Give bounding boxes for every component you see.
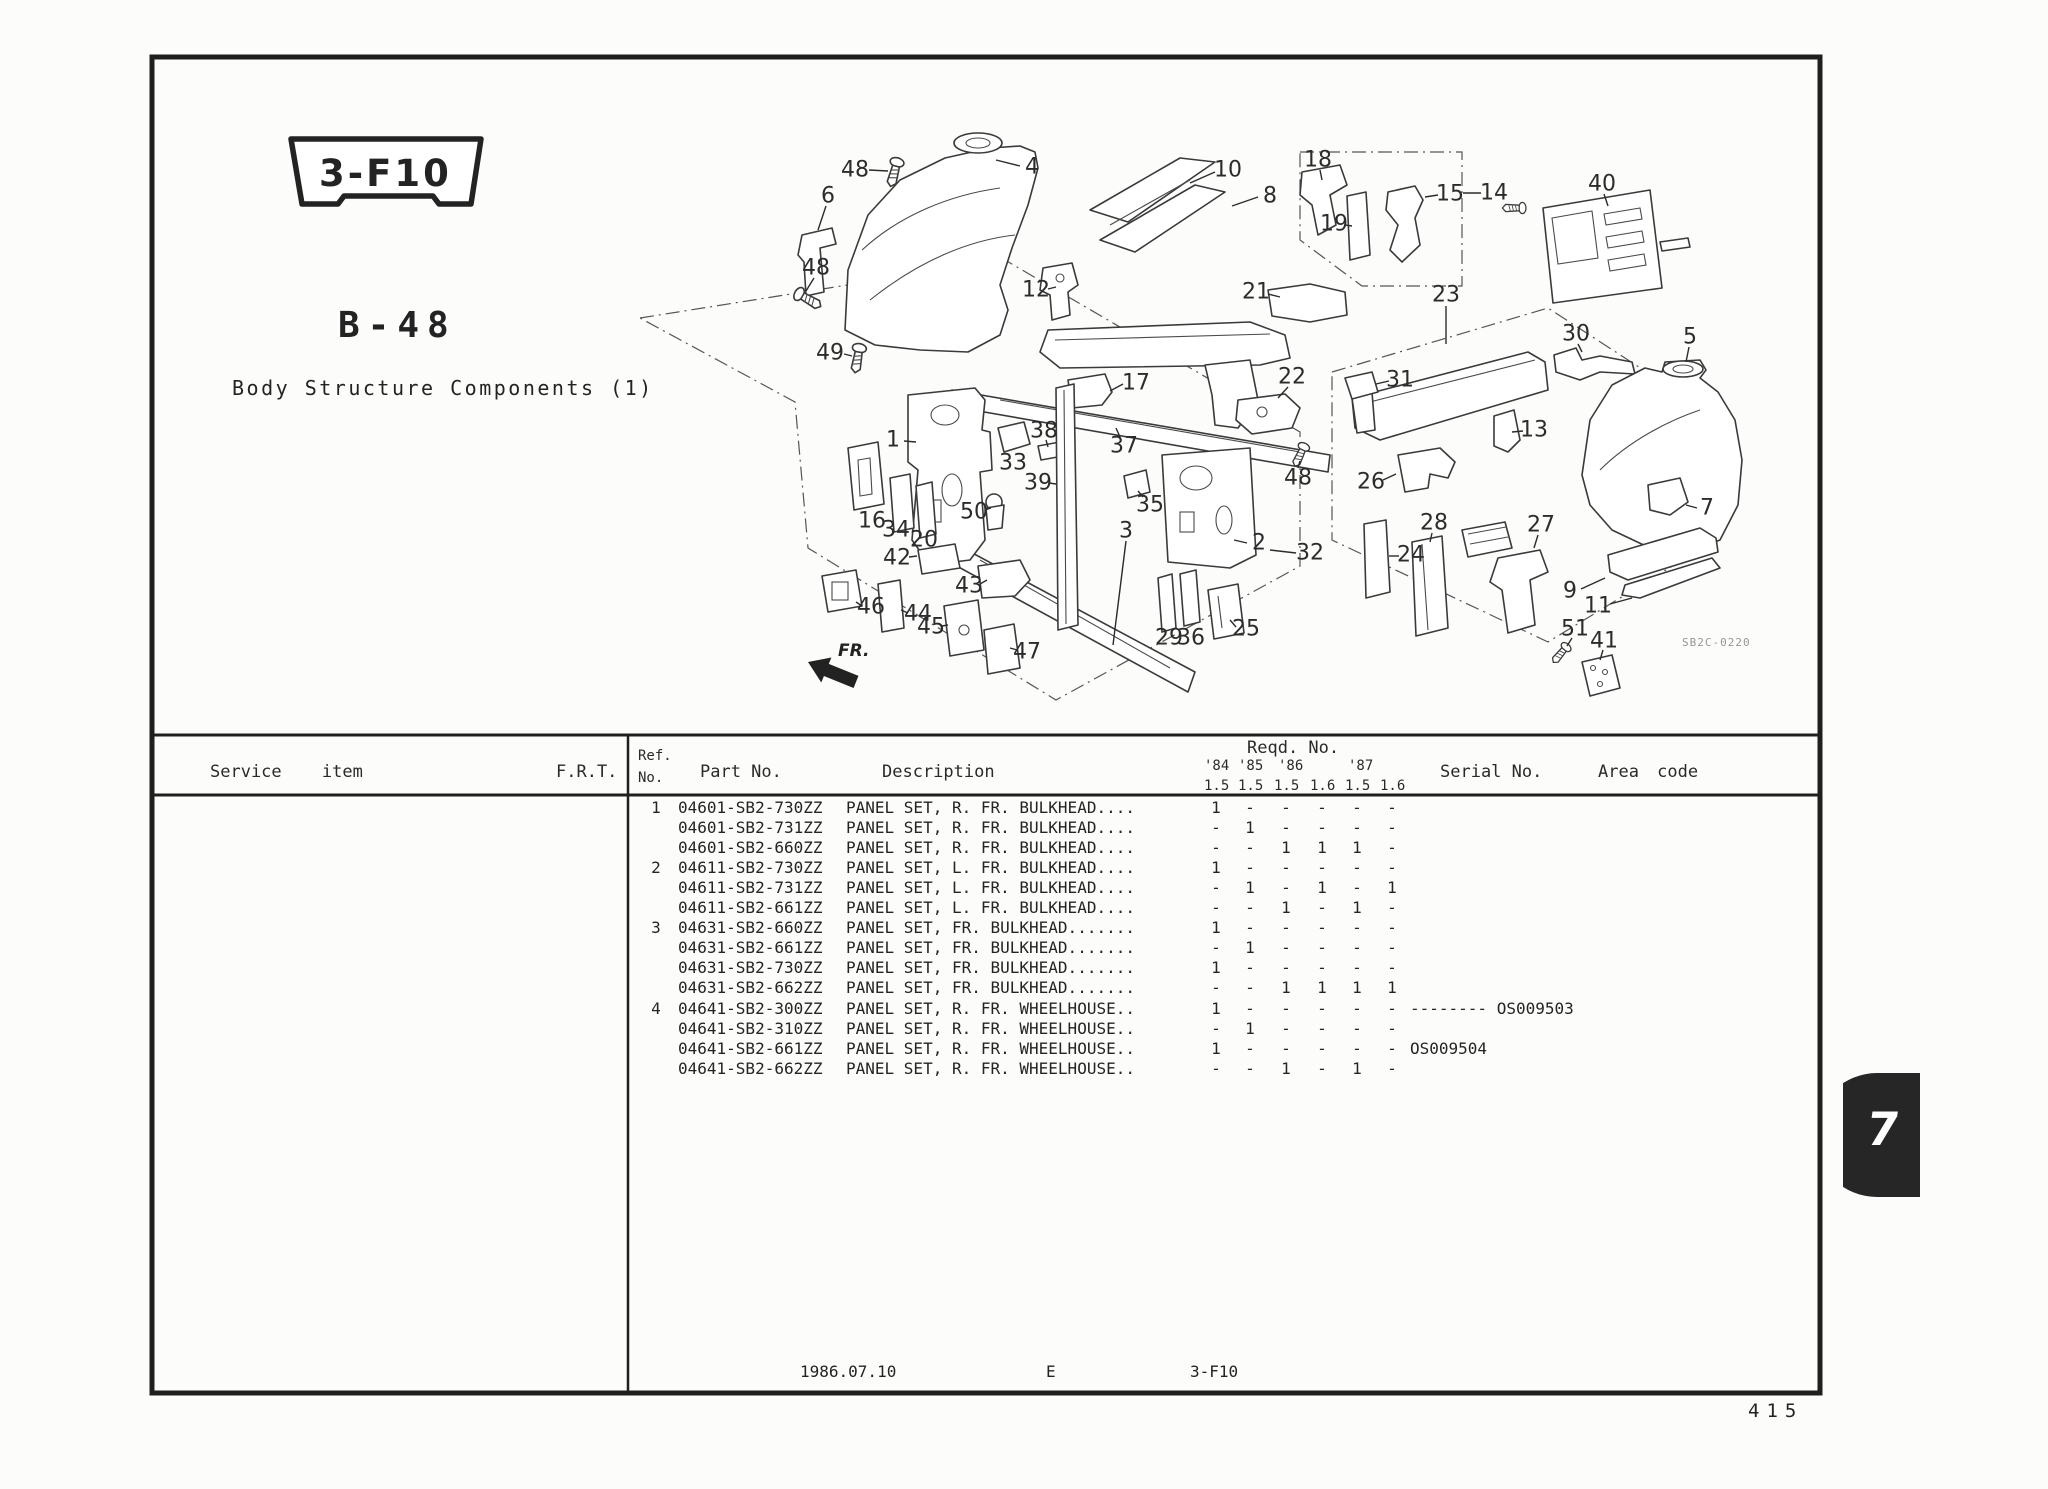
qty-value: 1: [1238, 938, 1262, 957]
qty-value: -: [1238, 898, 1262, 917]
qty-value: -: [1380, 1019, 1404, 1038]
qty-value: -: [1310, 818, 1334, 837]
qty-value: -: [1274, 918, 1298, 937]
part-number-label: 11: [1584, 594, 1612, 619]
part-number-label: 43: [955, 574, 983, 599]
part-number-label: 38: [1030, 419, 1058, 444]
qty-value: -: [1380, 838, 1404, 857]
qty-value: -: [1345, 878, 1369, 897]
part-number-label: 45: [917, 615, 945, 640]
description: PANEL SET, L. FR. BULKHEAD....: [846, 898, 1135, 917]
table-row: 404641-SB2-300ZZPANEL SET, R. FR. WHEELH…: [0, 999, 2048, 1019]
serial-no: OS009504: [1410, 1039, 1487, 1058]
qty-value: -: [1380, 958, 1404, 977]
qty-value: 1: [1380, 878, 1404, 897]
qty-value: 1: [1204, 958, 1228, 977]
part-no: 04611-SB2-661ZZ: [678, 898, 823, 917]
table-row: 04611-SB2-731ZZPANEL SET, L. FR. BULKHEA…: [0, 878, 2048, 898]
footer-date: 1986.07.10: [800, 1362, 896, 1381]
qty-value: -: [1204, 1019, 1228, 1038]
part-number-label: 48: [1284, 466, 1312, 491]
part-no: 04611-SB2-730ZZ: [678, 858, 823, 877]
part-number-label: 42: [883, 546, 911, 571]
model-label: 1.5: [1274, 778, 1299, 794]
table-row: 04641-SB2-310ZZPANEL SET, R. FR. WHEELHO…: [0, 1019, 2048, 1039]
part-no: 04641-SB2-300ZZ: [678, 999, 823, 1018]
qty-value: -: [1274, 818, 1298, 837]
qty-value: 1: [1204, 798, 1228, 817]
description: PANEL SET, L. FR. BULKHEAD....: [846, 858, 1135, 877]
qty-value: 1: [1310, 838, 1334, 857]
part-no: 04601-SB2-731ZZ: [678, 818, 823, 837]
description: PANEL SET, R. FR. BULKHEAD....: [846, 818, 1135, 837]
description: PANEL SET, FR. BULKHEAD.......: [846, 958, 1135, 977]
qty-value: -: [1345, 1039, 1369, 1058]
part-number-label: 5: [1683, 325, 1697, 350]
qty-value: 1: [1310, 878, 1334, 897]
part-number-label: 48: [802, 256, 830, 281]
description: PANEL SET, FR. BULKHEAD.......: [846, 938, 1135, 957]
qty-value: -: [1310, 938, 1334, 957]
table-row: 04631-SB2-661ZZPANEL SET, FR. BULKHEAD..…: [0, 938, 2048, 958]
part-no: 04641-SB2-662ZZ: [678, 1059, 823, 1078]
col-ref-1: Ref.: [638, 748, 672, 764]
description: PANEL SET, R. FR. WHEELHOUSE..: [846, 1019, 1135, 1038]
part-number-label: 27: [1527, 513, 1555, 538]
part-number-label: 17: [1122, 371, 1150, 396]
part-number-label: 50: [960, 500, 988, 525]
qty-value: 1: [1238, 818, 1262, 837]
tab-number: 7: [1864, 1106, 1902, 1152]
qty-value: -: [1238, 1039, 1262, 1058]
part-number-label: 6: [821, 184, 835, 209]
qty-value: -: [1345, 818, 1369, 837]
table-row: 104601-SB2-730ZZPANEL SET, R. FR. BULKHE…: [0, 798, 2048, 818]
footer-code: 3-F10: [1190, 1362, 1238, 1381]
description: PANEL SET, R. FR. BULKHEAD....: [846, 838, 1135, 857]
part-number-label: 4: [1025, 155, 1039, 180]
qty-value: -: [1310, 858, 1334, 877]
part-no: 04611-SB2-731ZZ: [678, 878, 823, 897]
part-number-label: 28: [1420, 511, 1448, 536]
table-row: 04641-SB2-661ZZPANEL SET, R. FR. WHEELHO…: [0, 1039, 2048, 1059]
qty-value: 1: [1204, 999, 1228, 1018]
qty-value: -: [1204, 898, 1228, 917]
qty-value: -: [1380, 798, 1404, 817]
qty-value: -: [1274, 798, 1298, 817]
qty-value: 1: [1345, 898, 1369, 917]
fr-arrow-label: FR.: [838, 641, 869, 661]
description: PANEL SET, FR. BULKHEAD.......: [846, 918, 1135, 937]
qty-value: 1: [1204, 1039, 1228, 1058]
leader-line: [1232, 197, 1258, 206]
ref-no: 2: [642, 858, 670, 877]
qty-value: -: [1380, 818, 1404, 837]
table-row: 04601-SB2-660ZZPANEL SET, R. FR. BULKHEA…: [0, 838, 2048, 858]
diagram-code: SB2C-0220: [1682, 636, 1751, 649]
part-number-label: 21: [1242, 280, 1270, 305]
part-no: 04601-SB2-730ZZ: [678, 798, 823, 817]
leader-line: [904, 441, 916, 442]
part-number-label: 7: [1700, 496, 1714, 521]
part-number-label: 36: [1177, 626, 1205, 651]
qty-value: 1: [1345, 1059, 1369, 1078]
qty-value: -: [1310, 798, 1334, 817]
description: PANEL SET, R. FR. WHEELHOUSE..: [846, 999, 1135, 1018]
ref-no: 4: [642, 999, 670, 1018]
qty-value: 1: [1274, 898, 1298, 917]
leader-line: [818, 206, 826, 230]
part-number-label: 2: [1252, 531, 1266, 556]
col-ref-2: No.: [638, 770, 663, 786]
part-number-label: 32: [1296, 541, 1324, 566]
page-title: Body Structure Components (1): [232, 376, 654, 400]
model-label: 1.6: [1310, 778, 1335, 794]
part-number-label: 51: [1561, 617, 1589, 642]
qty-value: -: [1345, 918, 1369, 937]
qty-value: -: [1310, 999, 1334, 1018]
year-label: '86: [1278, 758, 1303, 774]
ref-no: 1: [642, 798, 670, 817]
part-no: 04631-SB2-662ZZ: [678, 978, 823, 997]
qty-value: -: [1310, 898, 1334, 917]
part-number-label: 40: [1588, 172, 1616, 197]
qty-value: -: [1204, 838, 1228, 857]
part-number-label: 9: [1563, 579, 1577, 604]
part-number-label: 3: [1119, 519, 1133, 544]
model-label: 1.6: [1380, 778, 1405, 794]
qty-value: -: [1274, 999, 1298, 1018]
qty-value: -: [1310, 918, 1334, 937]
description: PANEL SET, R. FR. BULKHEAD....: [846, 798, 1135, 817]
leader-line: [1113, 541, 1126, 645]
part-no: 04641-SB2-310ZZ: [678, 1019, 823, 1038]
part-no: 04631-SB2-730ZZ: [678, 958, 823, 977]
table-row: 04611-SB2-661ZZPANEL SET, L. FR. BULKHEA…: [0, 898, 2048, 918]
qty-value: -: [1345, 999, 1369, 1018]
part-number-label: 22: [1278, 365, 1306, 390]
col-frt: F.R.T.: [556, 762, 617, 782]
qty-value: -: [1204, 878, 1228, 897]
year-label: '87: [1348, 758, 1373, 774]
qty-value: -: [1310, 1059, 1334, 1078]
col-reqd-no: Reqd. No.: [1247, 738, 1339, 758]
qty-value: 1: [1380, 978, 1404, 997]
qty-value: 1: [1204, 858, 1228, 877]
part-number-label: 19: [1320, 212, 1348, 237]
qty-value: -: [1274, 938, 1298, 957]
qty-value: -: [1238, 1059, 1262, 1078]
part-no: 04631-SB2-661ZZ: [678, 938, 823, 957]
part-number-label: 15: [1436, 182, 1464, 207]
qty-value: -: [1310, 1039, 1334, 1058]
qty-value: -: [1380, 999, 1404, 1018]
qty-value: -: [1380, 1039, 1404, 1058]
leader-line: [1581, 578, 1605, 589]
qty-value: -: [1204, 978, 1228, 997]
part-number-label: 31: [1386, 368, 1414, 393]
leader-line: [844, 354, 852, 356]
part-number-label: 1: [886, 428, 900, 453]
qty-value: -: [1345, 958, 1369, 977]
col-part-no: Part No.: [700, 762, 782, 782]
part-number-label: 34: [882, 518, 910, 543]
leader-line: [869, 170, 888, 171]
description: PANEL SET, L. FR. BULKHEAD....: [846, 878, 1135, 897]
diagram-canvas: 4846484910812211722481819151440233053113…: [0, 0, 2048, 1489]
qty-value: -: [1238, 918, 1262, 937]
qty-value: -: [1204, 938, 1228, 957]
qty-value: -: [1345, 798, 1369, 817]
section-index-tab: 7: [1843, 1073, 1921, 1198]
qty-value: -: [1345, 858, 1369, 877]
part-number-label: 37: [1110, 434, 1138, 459]
table-row: 04601-SB2-731ZZPANEL SET, R. FR. BULKHEA…: [0, 818, 2048, 838]
part-number-label: 23: [1432, 283, 1460, 308]
qty-value: 1: [1274, 838, 1298, 857]
col-area-code: Area code: [1598, 762, 1698, 782]
qty-value: -: [1274, 1019, 1298, 1038]
qty-value: -: [1238, 999, 1262, 1018]
qty-value: -: [1274, 1039, 1298, 1058]
qty-value: -: [1274, 958, 1298, 977]
section-code: B-48: [338, 305, 457, 346]
description: PANEL SET, R. FR. WHEELHOUSE..: [846, 1059, 1135, 1078]
part-number-label: 24: [1397, 543, 1425, 568]
qty-value: 1: [1345, 838, 1369, 857]
qty-value: -: [1380, 858, 1404, 877]
model-label: 1.5: [1345, 778, 1370, 794]
col-description: Description: [882, 762, 995, 782]
serial-no: -------- OS009503: [1410, 999, 1574, 1018]
qty-value: -: [1238, 798, 1262, 817]
qty-value: -: [1380, 918, 1404, 937]
qty-value: -: [1204, 818, 1228, 837]
part-number-label: 35: [1136, 493, 1164, 518]
qty-value: -: [1204, 1059, 1228, 1078]
footer-edition: E: [1046, 1362, 1056, 1381]
section-badge-label: 3-F10: [319, 152, 452, 195]
part-number-label: 49: [816, 341, 844, 366]
qty-value: 1: [1274, 1059, 1298, 1078]
year-label: '85: [1238, 758, 1263, 774]
col-serial-no: Serial No.: [1440, 762, 1542, 782]
part-number-label: 25: [1232, 617, 1260, 642]
part-number-label: 30: [1562, 322, 1590, 347]
part-number-label: 41: [1590, 629, 1618, 654]
qty-value: -: [1310, 958, 1334, 977]
qty-value: -: [1238, 958, 1262, 977]
part-number-label: 20: [910, 528, 938, 553]
part-number-label: 48: [841, 158, 869, 183]
part-number-label: 8: [1263, 184, 1277, 209]
qty-value: 1: [1204, 918, 1228, 937]
catalog-page: 4846484910812211722481819151440233053113…: [0, 0, 2048, 1489]
ref-no: 3: [642, 918, 670, 937]
qty-value: 1: [1274, 978, 1298, 997]
model-label: 1.5: [1238, 778, 1263, 794]
qty-value: -: [1274, 858, 1298, 877]
page-number: 415: [1748, 1400, 1803, 1422]
qty-value: -: [1380, 1059, 1404, 1078]
part-number-label: 12: [1022, 278, 1050, 303]
part-number-label: 39: [1024, 471, 1052, 496]
part-no: 04631-SB2-660ZZ: [678, 918, 823, 937]
description: PANEL SET, FR. BULKHEAD.......: [846, 978, 1135, 997]
table-row: 04641-SB2-662ZZPANEL SET, R. FR. WHEELHO…: [0, 1059, 2048, 1079]
qty-value: -: [1380, 898, 1404, 917]
part-number-label: 33: [999, 451, 1027, 476]
qty-value: -: [1345, 1019, 1369, 1038]
qty-value: -: [1238, 978, 1262, 997]
part-number-label: 18: [1304, 148, 1332, 173]
leader-line: [1270, 550, 1296, 553]
leader-line: [1610, 598, 1632, 604]
col-service-item: Service item: [210, 762, 363, 782]
qty-value: -: [1380, 938, 1404, 957]
table-row: 304631-SB2-660ZZPANEL SET, FR. BULKHEAD.…: [0, 918, 2048, 938]
part-number-label: 14: [1480, 181, 1508, 206]
part-no: 04641-SB2-661ZZ: [678, 1039, 823, 1058]
qty-value: 1: [1310, 978, 1334, 997]
qty-value: -: [1310, 1019, 1334, 1038]
part-number-label: 10: [1214, 158, 1242, 183]
table-row: 04631-SB2-662ZZPANEL SET, FR. BULKHEAD..…: [0, 978, 2048, 998]
part-no: 04601-SB2-660ZZ: [678, 838, 823, 857]
table-row: 204611-SB2-730ZZPANEL SET, L. FR. BULKHE…: [0, 858, 2048, 878]
qty-value: -: [1274, 878, 1298, 897]
part-number-label: 26: [1357, 470, 1385, 495]
model-label: 1.5: [1204, 778, 1229, 794]
part-number-label: 13: [1520, 418, 1548, 443]
qty-value: 1: [1345, 978, 1369, 997]
description: PANEL SET, R. FR. WHEELHOUSE..: [846, 1039, 1135, 1058]
qty-value: 1: [1238, 1019, 1262, 1038]
table-row: 04631-SB2-730ZZPANEL SET, FR. BULKHEAD..…: [0, 958, 2048, 978]
part-number-label: 47: [1013, 640, 1041, 665]
qty-value: -: [1238, 838, 1262, 857]
qty-value: -: [1238, 858, 1262, 877]
part-number-label: 46: [857, 595, 885, 620]
year-label: '84: [1204, 758, 1229, 774]
qty-value: -: [1345, 938, 1369, 957]
qty-value: 1: [1238, 878, 1262, 897]
